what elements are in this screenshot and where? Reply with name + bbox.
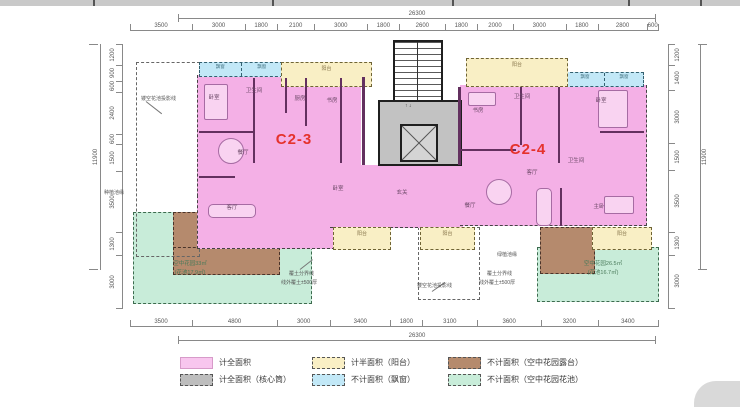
legend-swatch bbox=[448, 374, 481, 386]
annotation-label: 覆土分界线 bbox=[487, 270, 512, 277]
bay-window-strip-right-unit: 飘窗 飘窗 bbox=[565, 72, 644, 87]
dim-label: 3000 bbox=[334, 23, 347, 29]
dim-label: 2400 bbox=[110, 106, 116, 119]
dim-label: 600 bbox=[110, 81, 116, 91]
garden-area-line: (花池17.9㎡) bbox=[175, 270, 206, 276]
wall bbox=[285, 78, 287, 113]
legend-swatch bbox=[312, 357, 345, 369]
garden-area-line: 空中花园33㎡ bbox=[173, 261, 207, 267]
band-tick bbox=[628, 0, 630, 6]
balcony-top-left-unit: 阳台 bbox=[281, 62, 372, 87]
dining-table-right bbox=[486, 179, 512, 205]
dim-label: 1200 bbox=[110, 48, 116, 61]
dim-label: 1300 bbox=[675, 237, 681, 250]
legend-label: 不计面积（飘窗） bbox=[351, 374, 415, 385]
room-label: 书房 bbox=[472, 106, 483, 114]
garden-area-line: (花池16.7㎡) bbox=[588, 270, 619, 276]
legend-swatch bbox=[180, 357, 213, 369]
dim-segment: 3000 bbox=[192, 18, 245, 30]
bottom-dimension-chain: 350048003000340018003100360032003400 bbox=[130, 314, 658, 327]
stair-direction-label: ↑ ↓ bbox=[405, 103, 411, 109]
dim-segment: 2600 bbox=[399, 18, 445, 30]
dim-label: 3500 bbox=[110, 195, 116, 208]
band-tick bbox=[700, 0, 702, 6]
dim-segment: 1800 bbox=[245, 18, 277, 30]
room-label: 主卧 bbox=[593, 202, 604, 210]
wall bbox=[340, 78, 342, 163]
dim-segment: 3400 bbox=[330, 314, 390, 326]
stair-divider bbox=[417, 42, 418, 100]
dim-segment: 600 bbox=[647, 18, 658, 30]
room-label: 餐厅 bbox=[464, 201, 475, 209]
balcony-label: 阳台 bbox=[282, 65, 371, 72]
band-tick bbox=[452, 0, 454, 6]
room-label: 卧室 bbox=[208, 93, 219, 101]
dim-label: 3000 bbox=[110, 275, 116, 288]
dim-label: 1800 bbox=[400, 319, 413, 325]
legend-label: 计全面积 bbox=[219, 357, 251, 368]
room-label: 卧室 bbox=[332, 184, 343, 192]
dim-label: 3000 bbox=[675, 110, 681, 123]
floorplan-canvas: 26300 3500300018002100300018002600180020… bbox=[0, 0, 740, 407]
bay-window-cell: 飘窗 bbox=[566, 73, 604, 86]
legend-swatch bbox=[448, 357, 481, 369]
dim-segment: 1300 bbox=[669, 232, 683, 255]
dim-segment: 3500 bbox=[669, 170, 683, 232]
bed bbox=[204, 84, 228, 120]
desk bbox=[468, 92, 496, 106]
dim-segment: 3000 bbox=[108, 255, 122, 308]
legend-label: 不计面积（空中花园露台） bbox=[487, 357, 583, 368]
legend: 计全面积计半面积（阳台）不计面积（空中花园露台）计全面积（核心筒）不计面积（飘窗… bbox=[180, 354, 583, 388]
right-total-dimension: 11900 bbox=[700, 44, 709, 270]
room-label: 卧室 bbox=[595, 96, 606, 104]
left-dimension-chain: 120090060024006001500350013003000 bbox=[108, 44, 123, 308]
dim-label: 2100 bbox=[289, 23, 302, 29]
balcony-bottom-left: 阳台 bbox=[333, 227, 391, 250]
bay-window-label: 飘窗 bbox=[566, 74, 604, 80]
dim-label: 4800 bbox=[228, 319, 241, 325]
dim-label: 3400 bbox=[354, 319, 367, 325]
garden-area-line: 空中花园26.5㎡ bbox=[584, 261, 622, 267]
dim-label: 1200 bbox=[675, 48, 681, 61]
dim-segment: 2000 bbox=[477, 18, 512, 30]
dim-label: 3000 bbox=[675, 275, 681, 288]
units-center-band bbox=[330, 165, 463, 228]
annotation-label: 种植池缘 bbox=[104, 189, 124, 196]
dim-label: 1800 bbox=[254, 23, 267, 29]
dim-segment: 3000 bbox=[513, 18, 566, 30]
dim-label: 3200 bbox=[563, 319, 576, 325]
bay-window-cell: 飘窗 bbox=[604, 73, 643, 86]
room-label: 客厅 bbox=[226, 203, 237, 211]
dim-segment: 2800 bbox=[598, 18, 648, 30]
balcony-bottom-right: 阳台 bbox=[592, 227, 652, 250]
dim-segment: 1800 bbox=[445, 18, 477, 30]
dim-segment: 900 bbox=[108, 65, 122, 81]
unit-label-c2-4: C2-4 bbox=[500, 141, 556, 158]
dim-segment: 3000 bbox=[277, 314, 330, 326]
balcony-top-right-unit: 阳台 bbox=[466, 58, 568, 87]
dim-segment: 3500 bbox=[130, 18, 192, 30]
legend-swatch bbox=[180, 374, 213, 386]
sofa bbox=[536, 188, 552, 226]
balcony-label: 阳台 bbox=[593, 230, 651, 237]
legend-item: 不计面积（空中花园露台） bbox=[448, 357, 583, 369]
annotation-label: 镂空花池投影线 bbox=[417, 282, 452, 289]
dim-label: 3100 bbox=[443, 319, 456, 325]
legend-item: 计半面积（阳台） bbox=[312, 357, 444, 369]
dim-segment: 4800 bbox=[192, 314, 277, 326]
dim-label: 3500 bbox=[154, 23, 167, 29]
room-label: 卫生间 bbox=[514, 92, 531, 100]
corner-decoration bbox=[694, 381, 740, 407]
legend-item: 计全面积 bbox=[180, 357, 308, 369]
dim-label: 1800 bbox=[377, 23, 390, 29]
annotation-label: 镂空花池投影线 bbox=[141, 95, 176, 102]
dim-label: 2600 bbox=[416, 23, 429, 29]
right-garden-area-text: 空中花园26.5㎡ (花池16.7㎡) bbox=[558, 260, 648, 278]
wall bbox=[558, 87, 560, 163]
annotation-label: 覆土分界线 bbox=[289, 270, 314, 277]
dim-segment: 1800 bbox=[390, 314, 422, 326]
dim-label: 3500 bbox=[154, 319, 167, 325]
dim-segment: 3000 bbox=[669, 255, 683, 308]
dim-segment: 3500 bbox=[130, 314, 192, 326]
dim-segment: 3000 bbox=[669, 90, 683, 143]
balcony-bottom-center: 阳台 bbox=[420, 227, 475, 250]
wall bbox=[199, 176, 235, 178]
top-dimension-chain: 3500300018002100300018002600180020003000… bbox=[130, 18, 658, 31]
dim-label: 1300 bbox=[110, 237, 116, 250]
dim-segment: 1500 bbox=[108, 144, 122, 170]
legend-label: 计半面积（阳台） bbox=[351, 357, 415, 368]
balcony-label: 阳台 bbox=[334, 230, 390, 237]
wall bbox=[199, 131, 253, 133]
balcony-label: 阳台 bbox=[467, 61, 567, 68]
left-garden-area-text: 空中花园33㎡ (花池17.9㎡) bbox=[148, 260, 232, 278]
dim-label: 3400 bbox=[621, 319, 634, 325]
legend-item: 不计面积（飘窗） bbox=[312, 374, 444, 386]
bed bbox=[604, 196, 634, 214]
wall bbox=[600, 131, 644, 133]
room-label: 玄关 bbox=[396, 188, 407, 196]
core-staircase bbox=[393, 40, 443, 102]
dim-segment: 3000 bbox=[314, 18, 367, 30]
annotation-label: 绿植池缘 bbox=[497, 251, 517, 258]
annotation-label: 线外覆土±500厚 bbox=[479, 279, 515, 286]
legend-label: 计全面积（核心筒） bbox=[219, 374, 291, 385]
dim-label: 2800 bbox=[616, 23, 629, 29]
dim-label: 1800 bbox=[455, 23, 468, 29]
dim-segment: 1200 bbox=[669, 44, 683, 65]
bottom-total-dimension: 26300 bbox=[178, 330, 656, 341]
dim-label: 3000 bbox=[533, 23, 546, 29]
elevator-shaft bbox=[400, 124, 438, 162]
wall bbox=[362, 77, 365, 165]
legend-item: 不计面积（空中花园花池） bbox=[448, 374, 583, 386]
dim-label: 1800 bbox=[575, 23, 588, 29]
dim-label: 3000 bbox=[212, 23, 225, 29]
dim-segment: 3600 bbox=[477, 314, 541, 326]
dim-segment: 1800 bbox=[566, 18, 598, 30]
dim-segment: 3400 bbox=[598, 314, 658, 326]
dim-segment: 1300 bbox=[108, 232, 122, 255]
unit-label-c2-3: C2-3 bbox=[266, 131, 322, 148]
dim-label: 600 bbox=[110, 134, 116, 144]
annotation-label: 线外覆土±500厚 bbox=[281, 279, 317, 286]
room-label: 厨房 bbox=[294, 94, 305, 102]
band-tick bbox=[272, 0, 274, 6]
dim-label: 2000 bbox=[488, 23, 501, 29]
dim-segment: 3500 bbox=[108, 171, 122, 233]
wall bbox=[253, 131, 255, 163]
dim-segment: 1500 bbox=[669, 143, 683, 170]
legend-label: 不计面积（空中花园花池） bbox=[487, 374, 583, 385]
dim-segment: 600 bbox=[108, 134, 122, 145]
dim-segment: 2400 bbox=[108, 92, 122, 134]
band-tick bbox=[93, 0, 95, 6]
legend-swatch bbox=[312, 374, 345, 386]
bay-window-cell: 飘窗 bbox=[200, 63, 241, 76]
bay-window-label: 飘窗 bbox=[242, 64, 283, 70]
dim-segment: 2100 bbox=[277, 18, 314, 30]
dim-label: 900 bbox=[110, 68, 116, 78]
bay-window-label: 飘窗 bbox=[200, 64, 241, 70]
dim-segment: 1200 bbox=[108, 44, 122, 65]
dim-segment: 1800 bbox=[367, 18, 399, 30]
room-label: 餐厅 bbox=[237, 148, 248, 156]
dim-label: 600 bbox=[648, 23, 658, 29]
bay-window-label: 飘窗 bbox=[605, 74, 643, 80]
legend-item: 计全面积（核心筒） bbox=[180, 374, 308, 386]
dim-segment: 3100 bbox=[422, 314, 477, 326]
balcony-label: 阳台 bbox=[421, 230, 474, 237]
wall bbox=[458, 87, 461, 165]
wall bbox=[305, 78, 307, 126]
dim-label: 1500 bbox=[675, 150, 681, 163]
left-projection-outline bbox=[136, 62, 200, 257]
dim-segment: 3200 bbox=[541, 314, 598, 326]
room-label: 客厅 bbox=[526, 168, 537, 176]
room-label: 书房 bbox=[326, 96, 337, 104]
elevator-x-icon bbox=[402, 126, 436, 160]
right-dimension-chain: 1200140030001500350013003000 bbox=[668, 44, 683, 308]
bay-window-strip-left-unit: 飘窗 飘窗 bbox=[199, 62, 283, 77]
dim-label: 3500 bbox=[675, 194, 681, 207]
dim-label: 3000 bbox=[297, 319, 310, 325]
dim-label: 3600 bbox=[502, 319, 515, 325]
dim-segment: 1400 bbox=[669, 65, 683, 90]
dim-label: 1500 bbox=[110, 151, 116, 164]
wall bbox=[560, 188, 562, 226]
dim-segment: 600 bbox=[108, 81, 122, 92]
left-total-dimension: 11900 bbox=[92, 44, 101, 270]
room-label: 卫生间 bbox=[246, 86, 263, 94]
room-label: 卫生间 bbox=[568, 156, 585, 164]
bay-window-cell: 飘窗 bbox=[241, 63, 283, 76]
dim-label: 1400 bbox=[675, 71, 681, 84]
